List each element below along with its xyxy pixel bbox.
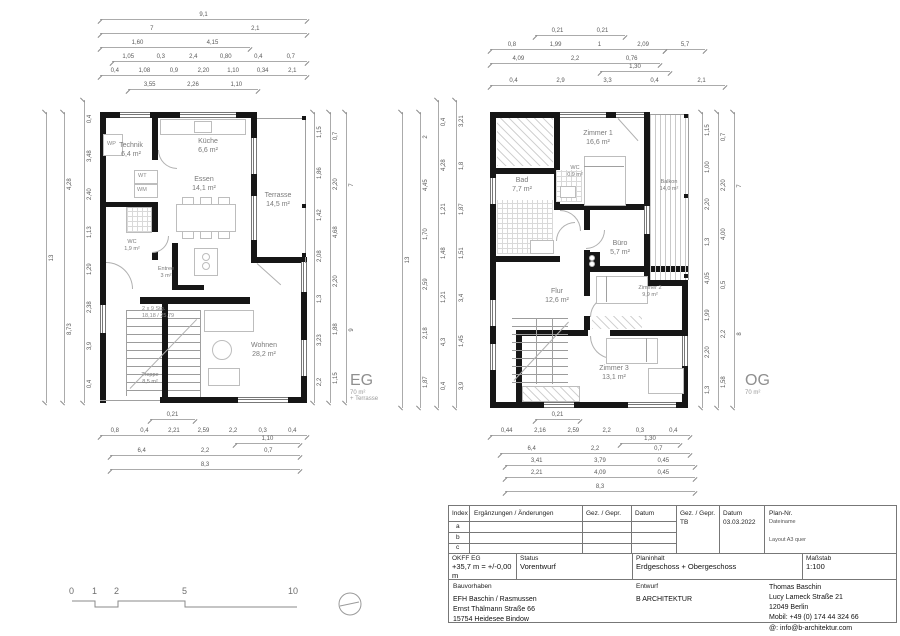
dim-row: 1,30	[600, 64, 670, 72]
window	[301, 340, 307, 376]
dim-value: 0,4	[631, 78, 678, 85]
wall	[152, 252, 158, 260]
dim-value: 2,09	[621, 42, 665, 49]
dim-value: EFH Baschin / Rasmussen	[453, 595, 537, 605]
balcony-post	[684, 194, 688, 198]
chair	[200, 231, 212, 239]
dim-value: Mobil: +49 (0) 174 44 324 66	[769, 613, 859, 623]
fixture-label-wm: WM	[137, 187, 147, 193]
dim-value: 1,3	[705, 385, 711, 395]
stair-edge	[126, 310, 127, 396]
washbasin	[530, 240, 554, 254]
door-arc	[106, 262, 133, 289]
room-label-zimmer1: Zimmer 116,6 m²	[583, 129, 613, 147]
dim-value: 2,59	[189, 428, 219, 435]
dim-value: 2,59	[423, 280, 429, 290]
dim-value: 3,4	[459, 293, 465, 303]
window	[490, 300, 496, 326]
dim-value: 0,4	[441, 381, 447, 391]
coffee-table	[212, 340, 232, 360]
dim-value: 1,48	[441, 249, 447, 259]
dim-value: 1,45	[459, 337, 465, 347]
dim-value: 7	[349, 180, 355, 190]
shower-tiles	[126, 207, 152, 233]
dim-value: 1,3	[705, 237, 711, 247]
dim-value: 0,7	[721, 132, 727, 142]
dim-value: 4,09	[490, 56, 547, 63]
scale-tick: 0	[69, 586, 74, 596]
dim-row: 1,10	[235, 436, 300, 444]
tb-divider	[631, 506, 632, 553]
tb-gez2-value: TB	[680, 519, 688, 526]
dim-value: 8,3	[505, 484, 695, 491]
chair	[218, 231, 230, 239]
dim-value: 2,40	[87, 190, 93, 200]
dim-row: 3,552,261,10	[128, 82, 258, 90]
dim-value: 2,20	[333, 277, 339, 287]
title-block: Index Ergänzungen / Änderungen Gez. / Ge…	[448, 505, 897, 623]
dim-value: 2,4	[177, 54, 210, 61]
stair-note-line2: 18,18 / 25,79	[142, 313, 174, 319]
door-arc	[556, 222, 575, 241]
window	[251, 196, 257, 240]
dim-value: 0,4	[130, 428, 160, 435]
toilet	[560, 186, 576, 198]
dim-value: 2,9	[537, 78, 584, 85]
tb-index-row-c: c	[456, 544, 459, 551]
dim-value: 1,58	[721, 378, 727, 388]
dim-value: 1,05	[112, 54, 145, 61]
bed-pillow-line	[606, 276, 607, 302]
dim-value: 0,7	[237, 448, 300, 455]
tb-status-cell: Status Vorentwurf	[516, 553, 632, 579]
window	[251, 138, 257, 174]
dim-col: 13	[402, 112, 413, 408]
dim-value: 2,2	[218, 428, 248, 435]
dim-value: 4,3	[441, 337, 447, 347]
door-arc	[152, 236, 169, 253]
balcony-edge	[650, 114, 688, 115]
room-label-terrasse: Terrasse14,5 m²	[265, 191, 292, 209]
room-label-zimmer2: Zimmer 29,9 m²	[638, 285, 661, 299]
tb-row-line	[449, 579, 896, 580]
dim-value: 2	[423, 132, 429, 142]
dim-value: 4,00	[721, 230, 727, 240]
room-label-zimmer3: Zimmer 313,1 m²	[599, 364, 629, 382]
wall	[610, 330, 688, 336]
dim-value: 4,05	[705, 274, 711, 284]
dim-value: 2,21	[505, 470, 568, 477]
dim-value: 3,21	[459, 117, 465, 127]
wall	[584, 316, 590, 330]
dim-value: 9	[349, 325, 355, 335]
chair	[182, 197, 194, 205]
room-label-flur: Flur12,6 m²	[545, 287, 569, 305]
balcony-post	[684, 274, 688, 278]
dim-row: 9,1	[100, 12, 307, 20]
dim-col: 13	[46, 112, 57, 403]
dim-value: 1,99	[705, 311, 711, 321]
dim-value: 2,1	[204, 26, 308, 33]
tb-datum2-header: Datum	[723, 510, 742, 517]
dim-value: 0,7	[627, 446, 690, 453]
chair	[182, 231, 194, 239]
dim-value: 1,10	[218, 68, 248, 75]
tb-divider	[719, 506, 720, 553]
room-label-balkon: Balkon14,0 m²	[660, 179, 679, 193]
dim-value: 2,20	[705, 348, 711, 358]
fixture-label-wt: WT	[138, 173, 147, 179]
dim-value: 0,34	[248, 68, 278, 75]
dim-value: 1,30	[600, 64, 670, 71]
wall	[140, 297, 250, 304]
tb-okff-cell: OKFF EG +35,7 m = +/-0,00 m	[449, 553, 516, 579]
dim-value: 3,79	[568, 458, 631, 465]
dim-value: 0,3	[145, 54, 178, 61]
tb-plannr-layout: Layout A3 quer	[769, 537, 806, 543]
room-label-wc: WC1,9 m²	[124, 239, 140, 253]
stair-rail	[552, 318, 553, 384]
dim-col: 0,43,482,401,131,292,383,90,4	[84, 100, 95, 403]
kitchen-sink	[194, 121, 212, 133]
dim-value: 0,4	[100, 68, 130, 75]
balcony-edge	[688, 114, 689, 280]
room-label-entree: Entree3 m²	[158, 266, 174, 280]
dim-row: 0,80,42,212,592,20,30,4	[100, 428, 307, 436]
dim-value: 2,2	[317, 377, 323, 387]
fixture-label-wp: WP	[107, 141, 116, 147]
scale-tick: 5	[182, 586, 187, 596]
dim-value: 1,13	[87, 228, 93, 238]
tb-row-line	[449, 532, 676, 533]
window	[180, 112, 236, 118]
wardrobe	[522, 386, 580, 402]
dim-row: 72,1	[100, 26, 307, 34]
dim-value: 1,10	[235, 436, 300, 443]
bed	[584, 156, 626, 206]
room-label-wohnen: Wohnen28,2 m²	[251, 341, 277, 359]
tb-divider	[764, 506, 765, 553]
dim-value: Ernst Thälmann Straße 66	[453, 605, 537, 615]
dim-value: 3,48	[87, 152, 93, 162]
terrace-door	[301, 262, 307, 292]
dim-row: 0,21	[535, 412, 580, 420]
dim-row: 5,7	[665, 42, 705, 50]
dim-value: 3,3	[584, 78, 631, 85]
tv-board	[208, 368, 240, 386]
dim-value: 0,4	[277, 428, 307, 435]
window	[682, 336, 688, 366]
dim-value: 1,08	[130, 68, 160, 75]
room-label-buero: Büro5,7 m²	[610, 239, 630, 257]
wall	[496, 256, 560, 262]
door-leaf	[257, 263, 281, 285]
tb-divider	[469, 506, 470, 553]
floor-label-og: OG 70 m²	[745, 372, 770, 396]
room-label-essen: Essen14,1 m²	[192, 175, 216, 193]
dim-value: 3,23	[317, 336, 323, 346]
tb-bauvorhaben-lines: EFH Baschin / RasmussenErnst Thälmann St…	[453, 595, 537, 625]
dim-value: 2,2	[173, 448, 236, 455]
dim-value: 2,38	[87, 303, 93, 313]
dim-row: 0,41,080,92,201,100,342,1	[100, 68, 307, 76]
dim-value: 2,20	[333, 180, 339, 190]
dim-value: 4,28	[441, 161, 447, 171]
balcony-post	[684, 114, 688, 118]
dim-value: 2,2	[721, 329, 727, 339]
dim-value: 0,4	[87, 114, 93, 124]
wall	[251, 112, 257, 263]
tb-row-line	[449, 521, 676, 522]
dim-row: 0,81,9912,09	[490, 42, 665, 50]
dim-row: 1,050,32,40,800,40,7	[112, 54, 307, 62]
dim-value: 1,86	[317, 169, 323, 179]
dim-value: 1,3	[317, 294, 323, 304]
dim-value: 0,80	[210, 54, 243, 61]
dim-value: 9,1	[100, 12, 307, 19]
dim-value: 0,4	[490, 78, 537, 85]
dim-row: 0,210,21	[535, 28, 625, 36]
tb-row-line	[449, 543, 676, 544]
dim-value: 5,7	[665, 42, 705, 49]
desk	[648, 368, 684, 394]
dim-value: 4,68	[333, 228, 339, 238]
dim-value: 3,9	[87, 341, 93, 351]
stair-run	[168, 310, 200, 396]
dim-value: 3,41	[505, 458, 568, 465]
dim-value: 7	[737, 181, 743, 191]
dim-col: 1,151,861,422,081,33,232,2	[314, 112, 325, 403]
dim-value: 12049 Berlin	[769, 603, 859, 613]
tb-changes-header: Ergänzungen / Änderungen	[474, 510, 554, 517]
wall	[251, 257, 307, 263]
window	[628, 402, 676, 408]
dim-value: 0,44	[490, 428, 523, 435]
tb-gez2-header: Gez. / Gepr.	[680, 510, 715, 517]
dim-value: 4,15	[175, 40, 250, 47]
tb-entwurf: Entwurf B ARCHITEKTUR	[636, 583, 692, 605]
dim-value: 1,99	[534, 42, 578, 49]
dim-value: 1,70	[423, 230, 429, 240]
door-arc	[586, 230, 605, 249]
stove-burner	[202, 253, 210, 261]
dim-value: 2,08	[317, 252, 323, 262]
dim-value: 1,21	[441, 293, 447, 303]
tb-index-row-a: a	[456, 523, 460, 530]
dim-value: 1,87	[423, 378, 429, 388]
dim-value: Lucy Lameck Straße 21	[769, 593, 859, 603]
stove-burner	[202, 262, 210, 270]
dim-value: 6,4	[500, 446, 563, 453]
dim-value: 0,3	[248, 428, 278, 435]
terrace-post	[302, 253, 306, 257]
window	[490, 344, 496, 370]
wall	[152, 112, 158, 160]
dim-col: 24,451,702,592,181,87	[420, 112, 431, 408]
dim-value: 1,60	[100, 40, 175, 47]
dim-value: 2,2	[590, 428, 623, 435]
dim-value: 6,4	[110, 448, 173, 455]
dim-row: 2,214,090,45	[505, 470, 695, 478]
dim-value: 0,21	[535, 28, 580, 35]
stair-note: 2 x 9 Stg. 18,18 / 25,79	[142, 306, 174, 319]
door-arc	[158, 150, 177, 169]
tb-index-row-b: b	[456, 534, 460, 541]
dim-value: 0,4	[657, 428, 690, 435]
dim-value: 1,15	[705, 126, 711, 136]
dim-value: 2,20	[189, 68, 219, 75]
room-label-bad: Bad7,7 m²	[512, 176, 532, 194]
tb-bauvorhaben: Bauvorhaben EFH Baschin / RasmussenErnst…	[453, 583, 537, 625]
dim-value: 0,45	[632, 458, 695, 465]
window	[100, 305, 106, 333]
dim-value: 2,16	[523, 428, 556, 435]
dim-value: 0,4	[242, 54, 275, 61]
dim-value: 0,8	[490, 42, 534, 49]
tb-divider	[676, 506, 677, 553]
window	[120, 112, 150, 118]
dim-row: 0,42,93,30,42,1	[490, 78, 725, 86]
dim-col: 0,44,281,211,481,214,30,4	[438, 100, 449, 408]
dim-row: 6,42,20,7	[500, 446, 690, 454]
wall	[172, 285, 204, 290]
dim-value: 8,3	[110, 462, 300, 469]
balcony-door	[616, 112, 644, 118]
dim-col: 78	[734, 112, 745, 408]
stair-edge	[200, 310, 201, 397]
terrace-post	[302, 116, 306, 120]
scale-tick: 10	[288, 586, 298, 596]
dim-row: 6,42,20,7	[110, 448, 300, 456]
dim-value: 8	[737, 329, 743, 339]
dim-row: 1,604,15	[100, 40, 250, 48]
dim-value: 2,20	[721, 181, 727, 191]
bed-pillow-line	[584, 166, 624, 167]
dim-value: 7	[100, 26, 204, 33]
dim-col: 4,288,73	[64, 112, 75, 403]
terrace-edge	[257, 118, 306, 119]
roof-slope-hatch	[592, 316, 642, 329]
dim-value: 4,45	[423, 181, 429, 191]
dim-value: 2,26	[171, 82, 214, 89]
bed	[606, 338, 658, 364]
floor-plan-sheet: 9,1 72,1 1,604,15 1,050,32,40,800,40,7 0…	[0, 0, 900, 636]
dim-col: 1,151,002,201,34,051,992,201,3	[702, 112, 713, 408]
balcony-deck	[650, 114, 688, 280]
dim-row: 1,30	[620, 436, 680, 444]
bed-pillow-line	[646, 338, 647, 362]
dim-value: 1,15	[333, 374, 339, 384]
dim-value: 4,09	[568, 470, 631, 477]
dim-row: 3,413,790,45	[505, 458, 695, 466]
tb-massstab-cell: Maßstab 1:100	[802, 553, 896, 579]
dim-value: 2,20	[705, 200, 711, 210]
dim-value: 0,21	[580, 28, 625, 35]
shaft-dot	[589, 261, 595, 267]
dim-value: 1,51	[459, 249, 465, 259]
roof-slope-hatch	[497, 118, 553, 166]
dim-value: 1	[578, 42, 622, 49]
tb-plannr-file: Dateiname	[769, 519, 796, 525]
dim-value: 2,2	[563, 446, 626, 453]
tb-index-header: Index	[452, 510, 468, 517]
sofa	[204, 310, 254, 332]
tb-architect: Thomas BaschinLucy Lameck Straße 2112049…	[769, 583, 859, 634]
dim-value: 0,5	[721, 280, 727, 290]
dim-col: 0,72,204,682,201,881,15	[330, 112, 341, 403]
dim-value: 1,15	[317, 128, 323, 138]
dim-value: 1,88	[333, 325, 339, 335]
scale-bar-line	[66, 598, 301, 612]
wall	[496, 168, 560, 174]
dim-row: 8,3	[110, 462, 300, 470]
terrace-post	[302, 204, 306, 208]
room-label-kueche: Küche6,6 m²	[198, 137, 218, 155]
dim-value: 3,9	[459, 381, 465, 391]
window	[238, 397, 288, 403]
dim-value: 2,1	[678, 78, 725, 85]
tb-datum2-value: 03.03.2022	[723, 519, 756, 526]
dim-value: 0,4	[87, 379, 93, 389]
dim-value: 2,21	[159, 428, 189, 435]
door-leaf	[618, 118, 639, 141]
dim-row: 0,21	[150, 412, 195, 420]
dim-col: 79	[346, 112, 357, 403]
dim-value: 1,30	[620, 436, 680, 443]
dim-value: 1,10	[215, 82, 258, 89]
dim-value: 8,73	[67, 325, 73, 335]
floor-label-eg: EG 70 m² + Terrasse	[350, 372, 378, 403]
dim-value: 0,21	[150, 412, 195, 419]
dim-value: 3,55	[128, 82, 171, 89]
dim-value: 0,7	[275, 54, 308, 61]
dim-col: 0,72,204,000,52,21,58	[718, 112, 729, 408]
room-label-og-wc: WC0,9 m²	[567, 165, 583, 179]
dim-value: 1,29	[87, 265, 93, 275]
tb-plannr-header: Plan-Nr.	[769, 510, 792, 517]
dim-col: 3,211,81,871,513,41,453,9	[456, 100, 467, 408]
wall	[584, 210, 590, 230]
chair	[218, 197, 230, 205]
window	[560, 112, 606, 118]
dim-value: 2,18	[423, 329, 429, 339]
dim-value: 13	[49, 253, 55, 263]
dim-value: 13	[405, 255, 411, 265]
tb-datum-header: Datum	[635, 510, 654, 517]
dim-row: 0,442,162,592,20,30,4	[490, 428, 690, 436]
dim-value: 1,00	[705, 163, 711, 173]
dim-value: 1,8	[459, 161, 465, 171]
dim-row: 4,092,20,76	[490, 56, 660, 64]
room-label-treppe: Treppe8,5 m²	[141, 372, 158, 386]
dim-value: 0,76	[603, 56, 660, 63]
dim-value: 0,21	[535, 412, 580, 419]
dim-value: 0,7	[333, 131, 339, 141]
chair	[200, 197, 212, 205]
tb-gez-header: Gez. / Gepr.	[586, 510, 621, 517]
dim-value: 0,8	[100, 428, 130, 435]
scale-tick: 1	[92, 586, 97, 596]
dining-table	[176, 204, 236, 232]
stair-note-line1: 2 x 9 Stg.	[142, 306, 165, 312]
dim-value: 1,87	[459, 205, 465, 215]
dim-value: 0,45	[632, 470, 695, 477]
terrace-edge	[305, 118, 306, 263]
dim-value: 1,21	[441, 205, 447, 215]
north-arrow-icon	[336, 590, 364, 618]
stair-rail	[536, 318, 537, 384]
wall	[584, 272, 590, 296]
